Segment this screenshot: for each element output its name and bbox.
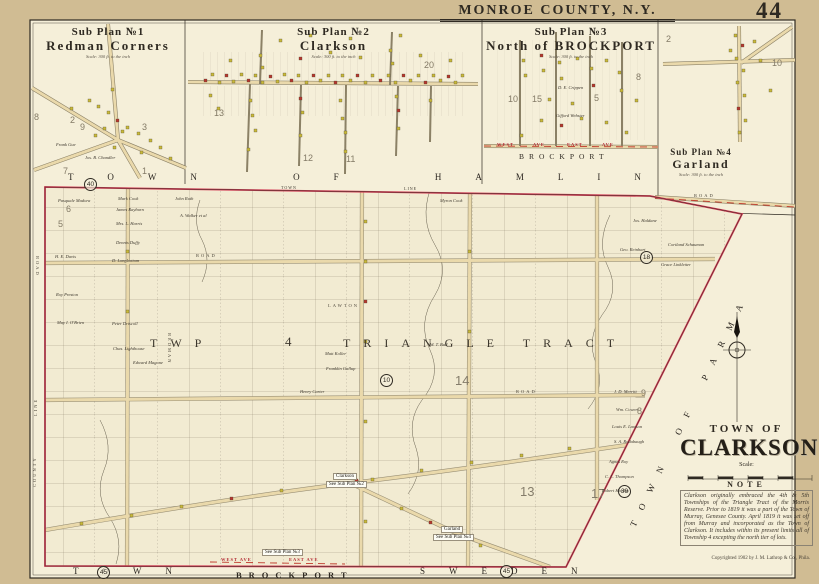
scale-label: Scale: [680,462,813,468]
sub-plan-3-name: North of BROCKPORT [484,38,658,54]
note-title: NOTE [680,480,813,489]
sub-plan-3-title: Sub Plan №3 [484,26,658,38]
sub-plan-3: Sub Plan №3 North of BROCKPORT Scale: 30… [484,26,658,59]
sub-plan-4-scale: Scale: 300 ft. to the inch [652,172,750,177]
sub-plan-4-name: Garland [652,157,750,172]
sub-plan-2: Sub Plan №2 Clarkson Scale: 300 ft. to t… [187,26,480,59]
town-name: CLARKSON [680,435,813,461]
page-number: 44 [756,0,783,24]
sub-plan-3-scale: Scale: 300 ft. to the inch [484,54,658,59]
sub-plan-1-scale: Scale: 300 ft. to the inch [32,54,184,59]
town-of-label: TOWN OF [680,423,813,435]
county-title: MONROE COUNTY, N.Y. [440,3,675,22]
title-block: TOWN OF CLARKSON Scale: NOTE Clarkson or… [680,423,813,546]
sub-plan-2-name: Clarkson [187,38,480,54]
note-text: Clarkson originally embraced the 4th & 5… [680,490,813,546]
sub-plan-1: Sub Plan №1 Redman Corners Scale: 300 ft… [32,26,184,59]
sub-plan-2-scale: Scale: 300 ft. to the inch [187,54,480,59]
sub-plan-4-title: Sub Plan №4 [652,147,750,157]
atlas-plate: MONROE COUNTY, N.Y. 44 Sub Plan №1 Redma… [0,0,819,584]
sub-plan-4: Sub Plan №4 Garland Scale: 300 ft. to th… [652,147,750,177]
sub-plan-1-title: Sub Plan №1 [32,26,184,38]
sub-plan-1-name: Redman Corners [32,38,184,54]
sub-plan-2-title: Sub Plan №2 [187,26,480,38]
copyright-line: Copyrighted 1902 by J. M. Lathrop & Co.,… [695,556,810,561]
